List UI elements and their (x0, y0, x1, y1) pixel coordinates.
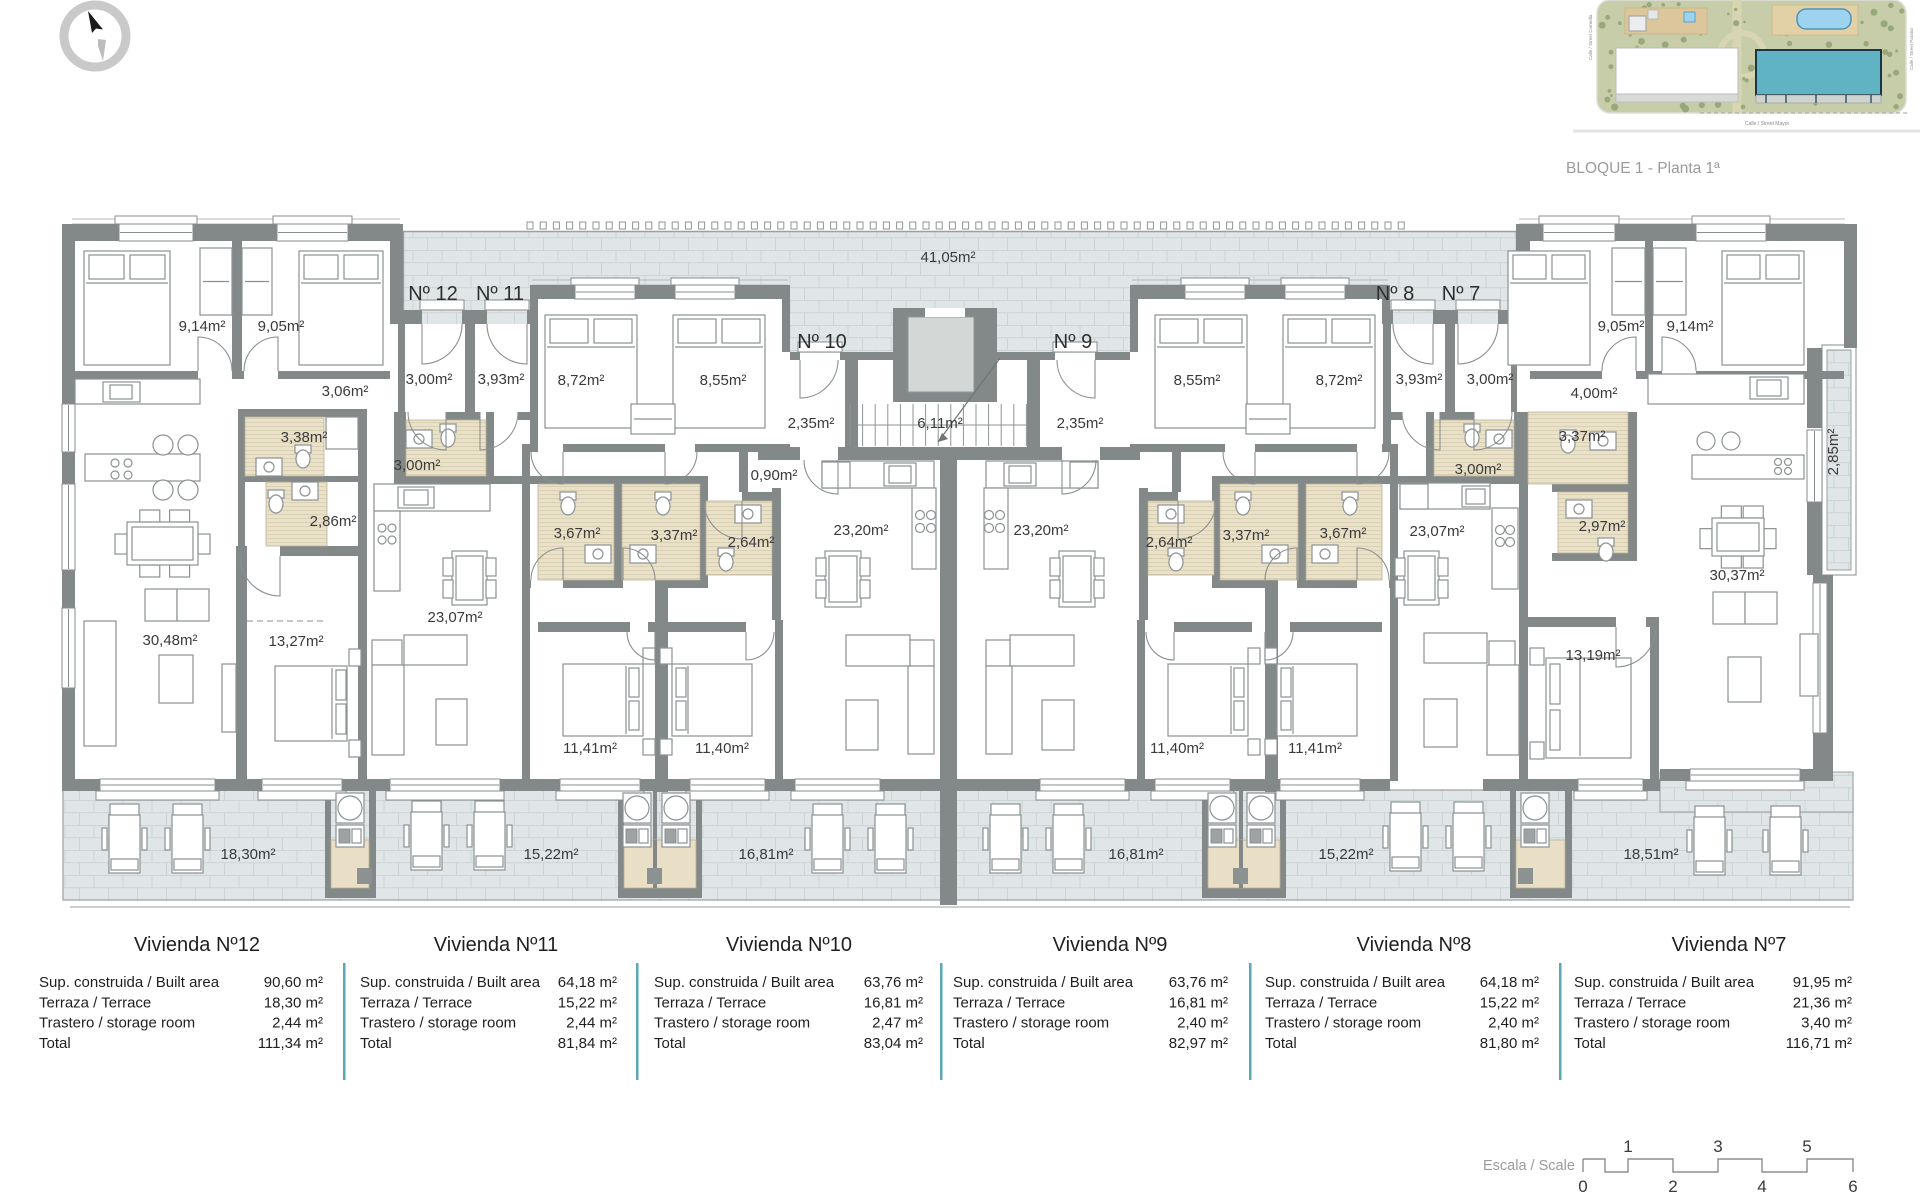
svg-text:Vivienda Nº7: Vivienda Nº7 (1672, 934, 1787, 956)
svg-text:4,00m²: 4,00m² (1571, 385, 1618, 402)
svg-text:Calle / Street Paraiso: Calle / Street Paraiso (1909, 27, 1914, 70)
svg-text:Vivienda Nº8: Vivienda Nº8 (1357, 934, 1472, 956)
svg-text:81,84 m²: 81,84 m² (558, 1035, 617, 1052)
svg-text:63,76 m²: 63,76 m² (1169, 974, 1228, 991)
svg-text:16,81 m²: 16,81 m² (1169, 994, 1228, 1011)
svg-text:9,05m²: 9,05m² (1598, 318, 1645, 335)
svg-text:Trastero / storage room: Trastero / storage room (654, 1015, 810, 1032)
svg-text:116,71 m²: 116,71 m² (1786, 1035, 1852, 1052)
svg-text:3: 3 (1713, 1137, 1722, 1156)
svg-text:Escala / Scale: Escala / Scale (1483, 1158, 1575, 1174)
svg-text:2,64m²: 2,64m² (1146, 534, 1193, 551)
svg-text:Trastero / storage room: Trastero / storage room (1265, 1015, 1421, 1032)
svg-text:Terraza / Terrace: Terraza / Terrace (39, 994, 151, 1011)
svg-text:3,67m²: 3,67m² (1320, 525, 1367, 542)
svg-text:2,64m²: 2,64m² (728, 534, 775, 551)
svg-text:18,30m²: 18,30m² (220, 846, 275, 863)
svg-text:Terraza / Terrace: Terraza / Terrace (1265, 994, 1377, 1011)
svg-text:2,40 m²: 2,40 m² (1177, 1015, 1228, 1032)
svg-text:3,38m²: 3,38m² (281, 429, 328, 446)
svg-text:111,34 m²: 111,34 m² (258, 1035, 323, 1052)
svg-text:64,18 m²: 64,18 m² (1480, 974, 1539, 991)
svg-text:2,85m²: 2,85m² (1825, 429, 1842, 476)
svg-text:1: 1 (1623, 1137, 1632, 1156)
svg-text:Trastero / storage room: Trastero / storage room (1574, 1015, 1730, 1032)
svg-text:3,06m²: 3,06m² (322, 383, 369, 400)
svg-text:3,93m²: 3,93m² (478, 371, 525, 388)
svg-text:16,81 m²: 16,81 m² (864, 994, 923, 1011)
svg-text:15,22 m²: 15,22 m² (558, 994, 617, 1011)
svg-text:8,55m²: 8,55m² (700, 372, 747, 389)
svg-text:21,36 m²: 21,36 m² (1793, 994, 1852, 1011)
svg-text:2: 2 (1668, 1177, 1677, 1196)
svg-text:Nº 9: Nº 9 (1054, 331, 1092, 353)
svg-text:9,14m²: 9,14m² (1667, 318, 1714, 335)
svg-text:13,19m²: 13,19m² (1565, 647, 1620, 664)
svg-text:18,30 m²: 18,30 m² (264, 994, 323, 1011)
svg-text:Terraza / Terrace: Terraza / Terrace (953, 994, 1065, 1011)
svg-text:Total: Total (39, 1035, 71, 1052)
svg-text:Vivienda Nº11: Vivienda Nº11 (434, 934, 558, 956)
svg-text:Terraza / Terrace: Terraza / Terrace (654, 994, 766, 1011)
svg-text:11,40m²: 11,40m² (1150, 740, 1204, 757)
svg-text:11,41m²: 11,41m² (563, 740, 617, 757)
svg-text:9,05m²: 9,05m² (258, 318, 305, 335)
svg-text:3,00m²: 3,00m² (394, 457, 441, 474)
svg-text:8,72m²: 8,72m² (1316, 372, 1363, 389)
svg-text:Trastero / storage room: Trastero / storage room (39, 1015, 195, 1032)
svg-text:0,90m²: 0,90m² (751, 467, 798, 484)
svg-text:3,00m²: 3,00m² (406, 371, 453, 388)
svg-text:3,37m²: 3,37m² (1559, 428, 1606, 445)
svg-text:16,81m²: 16,81m² (738, 846, 793, 863)
svg-text:Terraza / Terrace: Terraza / Terrace (1574, 994, 1686, 1011)
svg-text:6: 6 (1848, 1177, 1857, 1196)
svg-text:2,44 m²: 2,44 m² (566, 1015, 617, 1032)
svg-text:83,04 m²: 83,04 m² (864, 1035, 923, 1052)
svg-text:11,41m²: 11,41m² (1288, 740, 1342, 757)
svg-text:9,14m²: 9,14m² (179, 318, 226, 335)
svg-text:90,60 m²: 90,60 m² (264, 974, 323, 991)
svg-text:BLOQUE 1 - Planta 1ª: BLOQUE 1 - Planta 1ª (1566, 160, 1720, 177)
svg-text:Calle / Street Comedia: Calle / Street Comedia (1588, 14, 1593, 60)
svg-text:2,86m²: 2,86m² (310, 513, 357, 530)
svg-text:Vivienda Nº12: Vivienda Nº12 (134, 934, 260, 956)
svg-text:18,51m²: 18,51m² (1623, 846, 1678, 863)
svg-text:23,07m²: 23,07m² (427, 609, 482, 626)
svg-text:13,27m²: 13,27m² (268, 633, 323, 650)
svg-text:Sup. construida / Built area: Sup. construida / Built area (39, 974, 220, 991)
svg-text:Trastero / storage room: Trastero / storage room (360, 1015, 516, 1032)
svg-text:16,81m²: 16,81m² (1108, 846, 1163, 863)
svg-text:3,00m²: 3,00m² (1467, 371, 1514, 388)
svg-text:Nº 7: Nº 7 (1442, 283, 1480, 305)
svg-text:15,22m²: 15,22m² (523, 846, 578, 863)
svg-text:Sup. construida / Built area: Sup. construida / Built area (360, 974, 541, 991)
svg-text:Trastero / storage room: Trastero / storage room (953, 1015, 1109, 1032)
svg-text:Calle / Street Mayor: Calle / Street Mayor (1745, 121, 1790, 127)
svg-text:41,05m²: 41,05m² (920, 249, 975, 266)
svg-text:8,55m²: 8,55m² (1174, 372, 1221, 389)
svg-text:2,35m²: 2,35m² (1057, 415, 1104, 432)
svg-text:15,22m²: 15,22m² (1318, 846, 1373, 863)
svg-text:Terraza / Terrace: Terraza / Terrace (360, 994, 472, 1011)
svg-text:3,37m²: 3,37m² (651, 527, 698, 544)
svg-text:Total: Total (1574, 1035, 1606, 1052)
svg-text:0: 0 (1578, 1177, 1587, 1196)
svg-text:Sup. construida / Built area: Sup. construida / Built area (654, 974, 835, 991)
svg-text:5: 5 (1802, 1137, 1811, 1156)
svg-text:15,22 m²: 15,22 m² (1480, 994, 1539, 1011)
svg-text:2,97m²: 2,97m² (1579, 518, 1626, 535)
svg-text:Total: Total (360, 1035, 392, 1052)
svg-text:2,40 m²: 2,40 m² (1488, 1015, 1539, 1032)
svg-text:3,40 m²: 3,40 m² (1801, 1015, 1852, 1032)
svg-text:23,20m²: 23,20m² (833, 522, 888, 539)
svg-text:23,07m²: 23,07m² (1409, 523, 1464, 540)
svg-text:91,95 m²: 91,95 m² (1793, 974, 1852, 991)
svg-text:4: 4 (1757, 1177, 1766, 1196)
svg-text:3,00m²: 3,00m² (1455, 461, 1502, 478)
svg-text:Total: Total (654, 1035, 686, 1052)
svg-text:63,76 m²: 63,76 m² (864, 974, 923, 991)
svg-text:30,37m²: 30,37m² (1709, 567, 1764, 584)
svg-text:64,18 m²: 64,18 m² (558, 974, 617, 991)
svg-text:8,72m²: 8,72m² (558, 372, 605, 389)
svg-text:Nº 11: Nº 11 (476, 283, 524, 305)
svg-text:6,11m²: 6,11m² (917, 415, 963, 432)
svg-text:2,44 m²: 2,44 m² (272, 1015, 323, 1032)
svg-text:Nº 8: Nº 8 (1376, 283, 1414, 305)
svg-text:Total: Total (1265, 1035, 1297, 1052)
svg-text:Sup. construida / Built area: Sup. construida / Built area (953, 974, 1134, 991)
svg-text:Nº 12: Nº 12 (408, 283, 458, 305)
svg-text:81,80 m²: 81,80 m² (1480, 1035, 1539, 1052)
svg-text:30,48m²: 30,48m² (142, 632, 197, 649)
svg-text:23,20m²: 23,20m² (1013, 522, 1068, 539)
svg-text:Vivienda Nº10: Vivienda Nº10 (726, 934, 852, 956)
svg-text:Total: Total (953, 1035, 985, 1052)
svg-text:Sup. construida / Built area: Sup. construida / Built area (1265, 974, 1446, 991)
svg-text:Nº 10: Nº 10 (797, 331, 847, 353)
svg-text:3,37m²: 3,37m² (1223, 527, 1270, 544)
svg-text:82,97 m²: 82,97 m² (1169, 1035, 1228, 1052)
svg-text:2,47 m²: 2,47 m² (872, 1015, 923, 1032)
svg-text:3,67m²: 3,67m² (554, 525, 601, 542)
svg-text:2,35m²: 2,35m² (788, 415, 835, 432)
svg-text:11,40m²: 11,40m² (695, 740, 749, 757)
svg-text:3,93m²: 3,93m² (1396, 371, 1443, 388)
svg-text:Vivienda Nº9: Vivienda Nº9 (1053, 934, 1168, 956)
svg-text:Sup. construida / Built area: Sup. construida / Built area (1574, 974, 1755, 991)
